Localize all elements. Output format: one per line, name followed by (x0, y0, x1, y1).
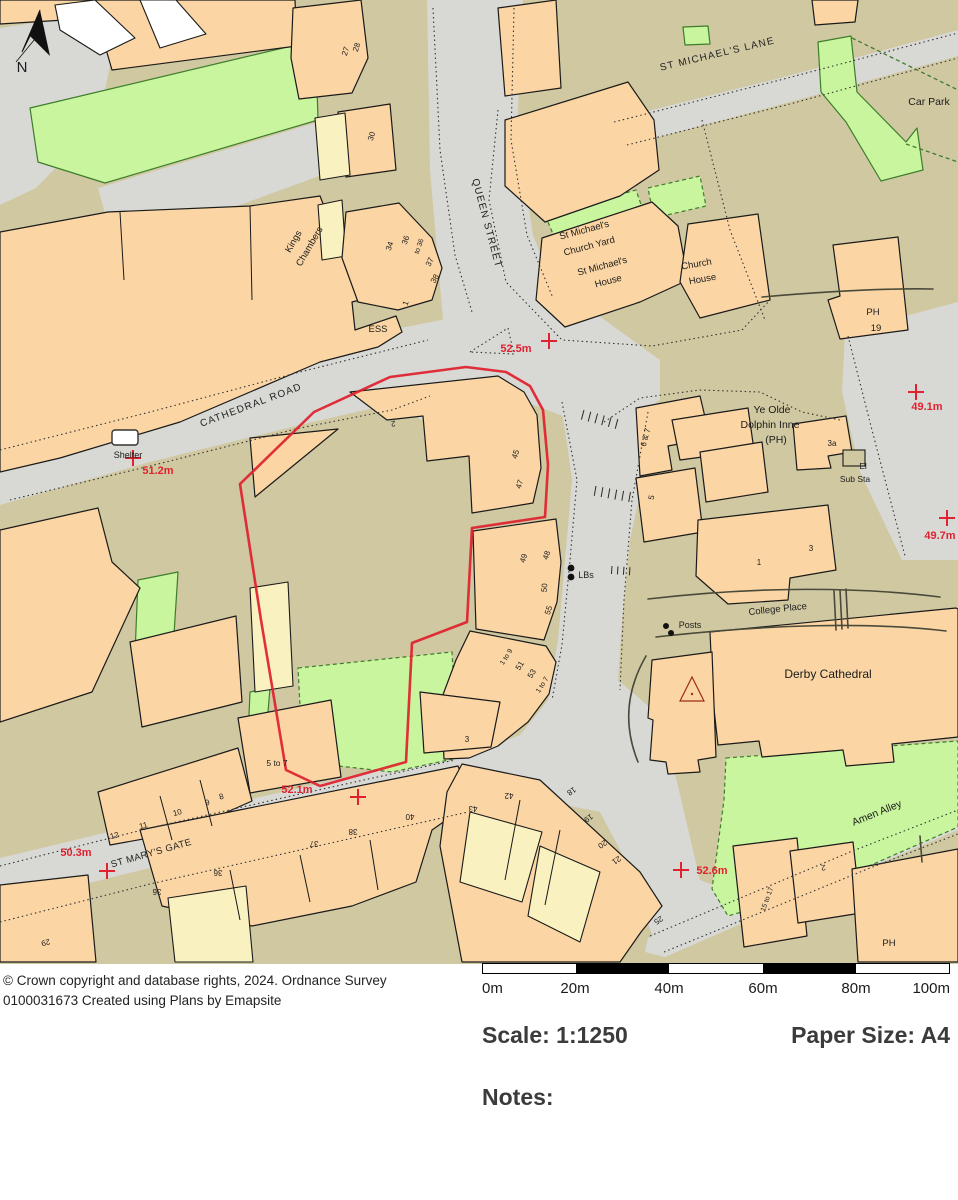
spot-height-51-2: 51.2m (142, 465, 173, 477)
place-label-dolphin-2: Dolphin Inne (741, 419, 800, 431)
spot-height-52-5: 52.5m (500, 343, 531, 355)
number-1-dolphin: 1 (757, 558, 762, 567)
scale-bar-segments (482, 963, 950, 974)
number-50: 50 (540, 582, 550, 592)
building-yellow-top (315, 113, 350, 180)
place-label-lbs: LBs (578, 570, 594, 580)
letterbox-dot-2 (568, 574, 575, 581)
cathedral-spire-dot (691, 693, 693, 695)
copyright-line-1: © Crown copyright and database rights, 2… (3, 971, 387, 991)
scale-bar-ticks: 0m 20m 40m 60m 80m 100m (482, 980, 950, 1000)
tick-80m: 80m (841, 980, 870, 997)
building-ph-19 (828, 237, 908, 339)
scale-bar-segment (483, 964, 576, 973)
building-2-se (790, 842, 861, 923)
scale-bar-segment (669, 964, 762, 973)
copyright-note: © Crown copyright and database rights, 2… (3, 971, 387, 1011)
north-label: N (17, 59, 28, 76)
map-canvas: N QUEEN STREET CATHEDRAL ROAD ST MICHAEL… (0, 0, 958, 964)
scale-label: Scale: 1:1250 (482, 1022, 628, 1049)
scale-bar-segment (576, 964, 669, 973)
letterbox-dot-1 (568, 565, 575, 572)
copyright-line-2: 0100031673 Created using Plans by Emapsi… (3, 991, 387, 1011)
number-40: 40 (405, 812, 414, 821)
place-label-ess: ESS (368, 324, 387, 335)
number-3-site: 3 (465, 735, 470, 744)
spot-height-49-1: 49.1m (911, 401, 942, 413)
spot-height-49-7: 49.7m (924, 530, 955, 542)
number-36-south-b: 36 (152, 887, 161, 896)
number-37-south: 37 (309, 839, 318, 848)
scale-bar-segment (763, 964, 856, 973)
place-label-derby-cathedral: Derby Cathedral (784, 667, 871, 681)
building-cathedral-tower (648, 652, 716, 774)
tick-60m: 60m (748, 980, 777, 997)
tick-20m: 20m (560, 980, 589, 997)
tick-40m: 40m (654, 980, 683, 997)
spot-height-52-6: 52.6m (696, 865, 727, 877)
scale-bar-segment (856, 964, 949, 973)
scale-bar: 0m 20m 40m 60m 80m 100m (482, 963, 950, 1000)
place-label-dolphin-1: Ye Olde (754, 404, 791, 416)
place-label-sub-sta: Sub Sta (840, 474, 871, 484)
number-36-south-a: 36 (213, 868, 222, 877)
number-43: 43 (468, 804, 477, 813)
number-42: 42 (504, 791, 513, 800)
number-3a: 3a (828, 439, 837, 448)
building-dolphin-c (700, 442, 768, 502)
place-label-posts: Posts (679, 620, 702, 630)
notes-label: Notes: (482, 1084, 554, 1111)
number-38-south: 38 (348, 827, 357, 836)
post-dot-2 (668, 630, 674, 636)
place-label-ph-north: PH (866, 307, 879, 318)
place-label-el: El (859, 461, 867, 471)
tick-0m: 0m (482, 980, 503, 997)
building-5 (636, 468, 703, 542)
number-3-dolphin: 3 (809, 544, 814, 553)
place-label-car-park: Car Park (908, 96, 950, 108)
place-label-shelter: Shelter (114, 450, 143, 460)
place-label-dolphin-3: (PH) (765, 434, 787, 446)
spot-height-52-1: 52.1m (281, 784, 312, 796)
shelter-symbol (112, 430, 138, 445)
number-5-to-7: 5 to 7 (266, 758, 288, 768)
building-site-3 (420, 692, 500, 753)
building-48-55 (473, 519, 561, 640)
tick-100m: 100m (912, 980, 950, 997)
paper-size-label: Paper Size: A4 (791, 1022, 950, 1049)
scale-paper-row: Scale: 1:1250 Paper Size: A4 (482, 1022, 950, 1049)
building-lane-top (812, 0, 858, 25)
building-ph-se (852, 849, 958, 962)
number-label-19-ph: 19 (871, 323, 882, 334)
building-queen-ne (498, 0, 561, 96)
building-yellow-sw (168, 886, 253, 962)
os-site-plan-page: N QUEEN STREET CATHEDRAL ROAD ST MICHAEL… (0, 0, 958, 1200)
green-lane-1 (683, 26, 710, 45)
place-label-ph-south: PH (882, 938, 895, 949)
spot-height-50-3: 50.3m (60, 847, 91, 859)
post-dot-1 (663, 623, 669, 629)
